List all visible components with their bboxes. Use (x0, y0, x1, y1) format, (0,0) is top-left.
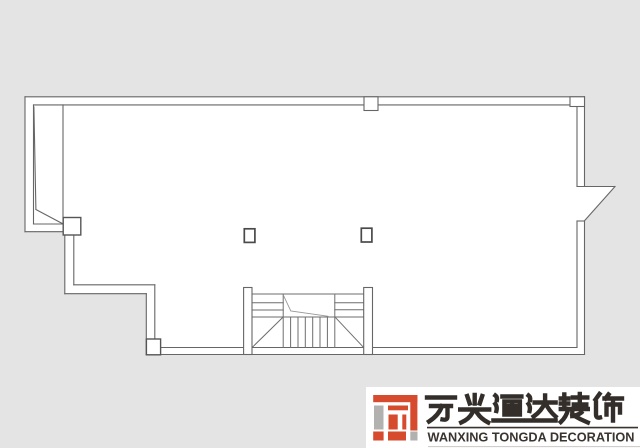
svg-text:WANXING TONGDA DECORATION: WANXING TONGDA DECORATION (428, 430, 635, 445)
